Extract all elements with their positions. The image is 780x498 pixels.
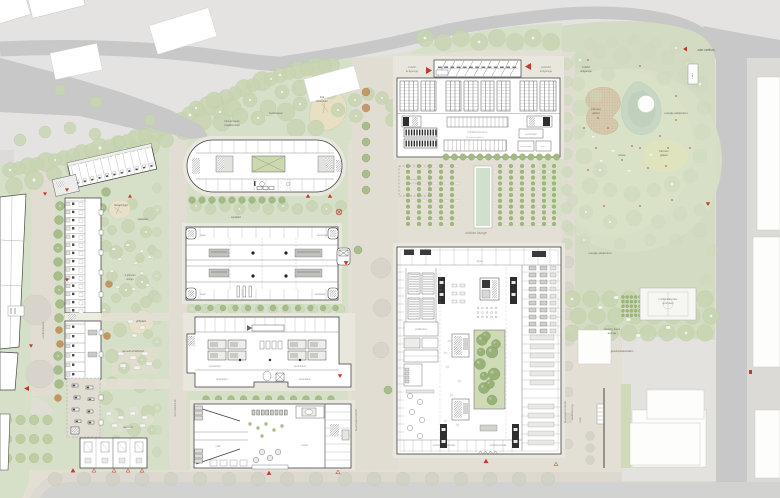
svg-text:feuerwehrzufahrt: feuerwehrzufahrt: [354, 409, 358, 432]
svg-text:lager: lager: [200, 292, 206, 296]
svg-text:gerätelager: gerätelager: [525, 133, 537, 136]
svg-text:empfangshalle: empfangshalle: [490, 443, 507, 447]
svg-text:produktion: produktion: [294, 364, 307, 368]
svg-text:bolzwiese: bolzwiese: [269, 111, 283, 115]
svg-text:gsou/reparaturstation: gsou/reparaturstation: [611, 350, 634, 353]
svg-text:lager: lager: [541, 145, 546, 148]
svg-text:lager: lager: [200, 233, 206, 237]
svg-text:produktion: produktion: [216, 377, 229, 381]
svg-text:lounge: lounge: [126, 278, 134, 281]
svg-text:anlieferung: anlieferung: [570, 404, 574, 419]
svg-text:produktion: produktion: [299, 377, 312, 381]
svg-text:mobilitätszentrum: mobilitätszentrum: [467, 130, 487, 134]
svg-text:produktion: produktion: [209, 364, 222, 368]
svg-text:gräser: gräser: [592, 111, 600, 115]
svg-text:küche: küche: [302, 443, 309, 447]
svg-text:werkstatt: werkstatt: [315, 292, 326, 296]
svg-text:feuerwehrzufahrt: feuerwehrzufahrt: [563, 401, 567, 424]
svg-text:25 radabstellplätze: 25 radabstellplätze: [466, 136, 485, 139]
svg-text:auditorium: auditorium: [415, 327, 427, 331]
svg-text:multifunktionale: multifunktionale: [406, 178, 422, 181]
svg-text:multifunktionaler: multifunktionaler: [659, 297, 678, 301]
svg-text:energie-skulpturen: energie-skulpturen: [588, 251, 612, 255]
svg-text:skulpturen: skulpturen: [124, 274, 136, 277]
svg-text:kletterhügel: kletterhügel: [114, 203, 128, 207]
svg-text:gemeinschaftshof: gemeinschaftshof: [122, 349, 144, 353]
svg-text:foyer: foyer: [477, 259, 483, 263]
svg-text:café: café: [216, 444, 221, 448]
svg-text:spielplatz: spielplatz: [138, 217, 150, 221]
svg-text:zufahrt: zufahrt: [582, 65, 590, 69]
svg-text:werkhof: werkhof: [123, 425, 133, 429]
svg-text:werkstatt: werkstatt: [317, 233, 328, 237]
svg-text:grillplatz: grillplatz: [136, 319, 147, 323]
svg-text:radabstellplätze: radabstellplätze: [42, 321, 45, 338]
svg-text:spielplatz: spielplatz: [316, 99, 328, 103]
svg-text:tiefgarage: tiefgarage: [540, 69, 553, 73]
svg-text:gräser: gräser: [660, 153, 668, 157]
svg-text:fahrradstraße: fahrradstraße: [173, 399, 177, 416]
svg-text:müll: müll: [578, 417, 582, 422]
svg-text:lounge: lounge: [608, 331, 617, 335]
svg-text:zum certhos: zum certhos: [697, 48, 715, 52]
svg-text:blumenwiese: blumenwiese: [224, 119, 240, 123]
svg-text:tiefgarage: tiefgarage: [580, 69, 592, 73]
svg-text:wiese: wiese: [618, 153, 626, 157]
svg-text:e-bike: e-bike: [692, 72, 694, 79]
svg-text:tiefgarage: tiefgarage: [406, 69, 419, 73]
svg-text:spielplatz: spielplatz: [231, 216, 242, 219]
svg-text:insektenhotel: insektenhotel: [224, 123, 240, 127]
svg-text:sportplatz: sportplatz: [662, 301, 674, 305]
svg-text:abstellraum: abstellraum: [520, 145, 531, 148]
svg-text:energie-skulpturen: energie-skulpturen: [664, 111, 688, 115]
svg-text:sport & fitness: sport & fitness: [407, 182, 422, 185]
svg-text:outdoor lounge: outdoor lounge: [465, 231, 486, 235]
